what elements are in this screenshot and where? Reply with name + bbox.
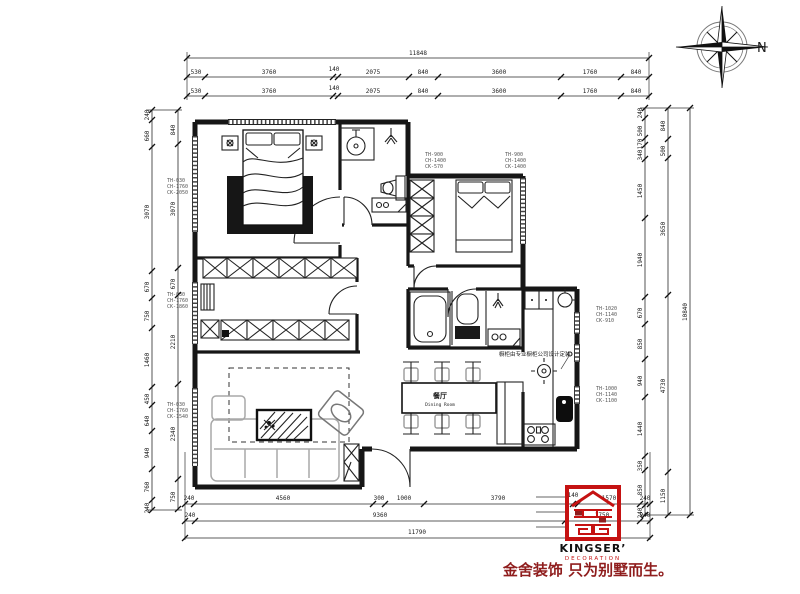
svg-text:3760: 3760 <box>262 69 277 76</box>
svg-text:1450: 1450 <box>637 183 644 198</box>
cabinet-note: 橱柜由专业橱柜公司设计定装 <box>499 350 572 369</box>
svg-text:170: 170 <box>637 138 644 149</box>
dining-room-label: 餐厅 <box>432 391 447 400</box>
window-tag: TH-900 CH-1400 CK-1400 <box>505 152 526 170</box>
svg-text:CK-570: CK-570 <box>425 164 443 170</box>
bed <box>243 130 303 225</box>
closet-column <box>410 180 434 252</box>
cabinet-peninsula <box>497 382 523 444</box>
window-master-top <box>228 120 336 125</box>
cabinet-note-text: 橱柜由专业橱柜公司设计定装 <box>499 350 571 358</box>
window-tag: TH-900 CH-1400 CK-570 <box>425 152 446 170</box>
svg-text:3790: 3790 <box>491 495 506 502</box>
window-kitchen-2 <box>575 344 580 362</box>
svg-text:640: 640 <box>144 415 151 426</box>
svg-text:500: 500 <box>660 145 667 156</box>
refrigerator <box>525 291 553 309</box>
toilet <box>455 294 480 339</box>
svg-text:CK-1540: CK-1540 <box>167 414 188 420</box>
svg-text:840: 840 <box>170 124 177 135</box>
door-entry <box>372 449 410 487</box>
svg-text:2075: 2075 <box>366 88 381 95</box>
svg-text:140: 140 <box>329 85 340 92</box>
dimension-left: 240 660 3070 670 750 1460 450 640 940 76… <box>144 107 181 513</box>
basin <box>347 137 365 155</box>
toilet <box>381 176 405 200</box>
svg-text:3760: 3760 <box>262 88 277 95</box>
svg-text:300: 300 <box>374 495 385 502</box>
svg-text:450: 450 <box>144 393 151 404</box>
svg-text:750: 750 <box>144 310 151 321</box>
svg-text:350: 350 <box>637 460 644 471</box>
svg-text:840: 840 <box>418 69 429 76</box>
svg-text:3070: 3070 <box>170 201 177 216</box>
svg-text:840: 840 <box>631 88 642 95</box>
round-sink <box>558 289 576 307</box>
master-bedroom <box>222 130 322 234</box>
svg-text:2210: 2210 <box>170 334 177 349</box>
svg-text:850: 850 <box>637 338 644 349</box>
compass-icon: N <box>676 6 768 88</box>
shower-icon <box>493 293 503 308</box>
svg-text:660: 660 <box>144 130 151 141</box>
faucet-icon <box>352 130 360 137</box>
dim-total-top: 11848 <box>409 50 427 57</box>
svg-text:1000: 1000 <box>397 495 412 502</box>
svg-text:1460: 1460 <box>144 352 151 367</box>
svg-text:750: 750 <box>170 491 177 502</box>
svg-text:760: 760 <box>144 481 151 492</box>
logo-slogan: 金舍装饰 只为别墅而生。 <box>502 561 673 579</box>
svg-text:3650: 3650 <box>660 221 667 236</box>
bathroom-1 <box>340 128 406 212</box>
svg-text:4560: 4560 <box>276 495 291 502</box>
svg-text:940: 940 <box>144 447 151 458</box>
door-bedroom2 <box>414 266 436 288</box>
svg-text:2075: 2075 <box>366 69 381 76</box>
window-corridor-left <box>193 282 198 344</box>
control-box <box>222 330 229 337</box>
window-master-left <box>193 136 198 232</box>
window-bedroom2-right <box>521 178 526 244</box>
window-kitchen-3 <box>575 386 580 404</box>
svg-text:840: 840 <box>631 69 642 76</box>
svg-text:4730: 4730 <box>660 378 667 393</box>
svg-text:530: 530 <box>191 69 202 76</box>
lamp-icon <box>227 140 233 146</box>
svg-text:670: 670 <box>144 281 151 292</box>
svg-text:240: 240 <box>144 502 151 513</box>
svg-text:3600: 3600 <box>492 88 507 95</box>
shoe-cabinet <box>344 444 359 481</box>
vanity <box>488 329 520 346</box>
svg-text:340: 340 <box>637 149 644 160</box>
floor-plan-drawing: 餐厅 Dining Room 橱柜由专业橱柜公司设计定装 <box>0 0 800 594</box>
svg-text:1940: 1940 <box>637 252 644 267</box>
dining-room: 餐厅 Dining Room <box>402 362 523 444</box>
stove <box>523 424 555 445</box>
window-tag: TH-1020 CH-1140 CK-910 <box>596 306 617 324</box>
coffee-table <box>257 410 311 440</box>
dim-total-bottom: 11790 <box>408 529 426 536</box>
svg-text:CK-1100: CK-1100 <box>596 398 617 404</box>
svg-text:850: 850 <box>637 484 644 495</box>
bathroom-2 <box>410 292 520 346</box>
pillow <box>485 182 510 193</box>
svg-text:670: 670 <box>170 278 177 289</box>
svg-text:940: 940 <box>637 375 644 386</box>
svg-text:1440: 1440 <box>637 421 644 436</box>
svg-text:530: 530 <box>191 88 202 95</box>
svg-text:2340: 2340 <box>170 426 177 441</box>
window-tag: TH-030 CH-1760 CK-2050 <box>167 178 188 196</box>
living-room <box>211 368 365 481</box>
svg-text:CK-1860: CK-1860 <box>167 304 188 310</box>
svg-text:9360: 9360 <box>373 512 388 519</box>
window-tag: TH-030 CH-1760 CK-1540 <box>167 402 188 420</box>
svg-text:240: 240 <box>185 512 196 519</box>
svg-text:240: 240 <box>637 507 644 518</box>
svg-text:CK-1400: CK-1400 <box>505 164 526 170</box>
svg-text:CK-2050: CK-2050 <box>167 190 188 196</box>
logo-brand: KINGSER’ <box>560 542 627 555</box>
svg-text:500: 500 <box>637 125 644 136</box>
svg-text:1150: 1150 <box>660 488 667 503</box>
dimension-top: 11848 530 3760 140 2075 840 3600 1760 84… <box>184 50 652 99</box>
dimension-right: 240 500 170 340 1450 1940 670 850 940 14… <box>637 105 693 518</box>
svg-text:140: 140 <box>329 66 340 73</box>
bed <box>456 180 512 252</box>
window-tag: TH-1000 CH-1140 CK-1100 <box>596 386 617 404</box>
door-corridor <box>329 286 357 314</box>
armchair <box>317 389 365 436</box>
doors <box>294 197 476 487</box>
bathtub <box>410 292 450 346</box>
compass-north-label: N <box>757 41 767 56</box>
kitchen-sink <box>556 396 573 422</box>
svg-text:670: 670 <box>637 307 644 318</box>
svg-text:840: 840 <box>660 120 667 131</box>
radiator <box>201 284 214 310</box>
svg-text:3070: 3070 <box>144 204 151 219</box>
floor-plan-page: 餐厅 Dining Room 橱柜由专业橱柜公司设计定装 <box>0 0 800 594</box>
door-bath1 <box>344 197 372 225</box>
dim-total-right: 10840 <box>682 303 689 321</box>
window-kitchen-1 <box>575 312 580 334</box>
dining-table <box>402 383 496 413</box>
svg-text:240: 240 <box>144 109 151 120</box>
window-living-left <box>193 388 198 466</box>
svg-text:CK-910: CK-910 <box>596 318 614 324</box>
svg-text:1760: 1760 <box>583 88 598 95</box>
shower-icon <box>385 128 397 144</box>
svg-text:240: 240 <box>184 495 195 502</box>
svg-text:1760: 1760 <box>583 69 598 76</box>
bedroom-2 <box>410 180 512 252</box>
svg-text:840: 840 <box>418 88 429 95</box>
svg-text:3600: 3600 <box>492 69 507 76</box>
svg-text:240: 240 <box>637 107 644 118</box>
dining-room-label-en: Dining Room <box>425 402 455 408</box>
svg-text:140: 140 <box>568 492 579 499</box>
kitchen <box>523 289 576 447</box>
closet-row-top <box>203 258 357 278</box>
pillow <box>458 182 483 193</box>
lamp-icon <box>311 140 317 146</box>
